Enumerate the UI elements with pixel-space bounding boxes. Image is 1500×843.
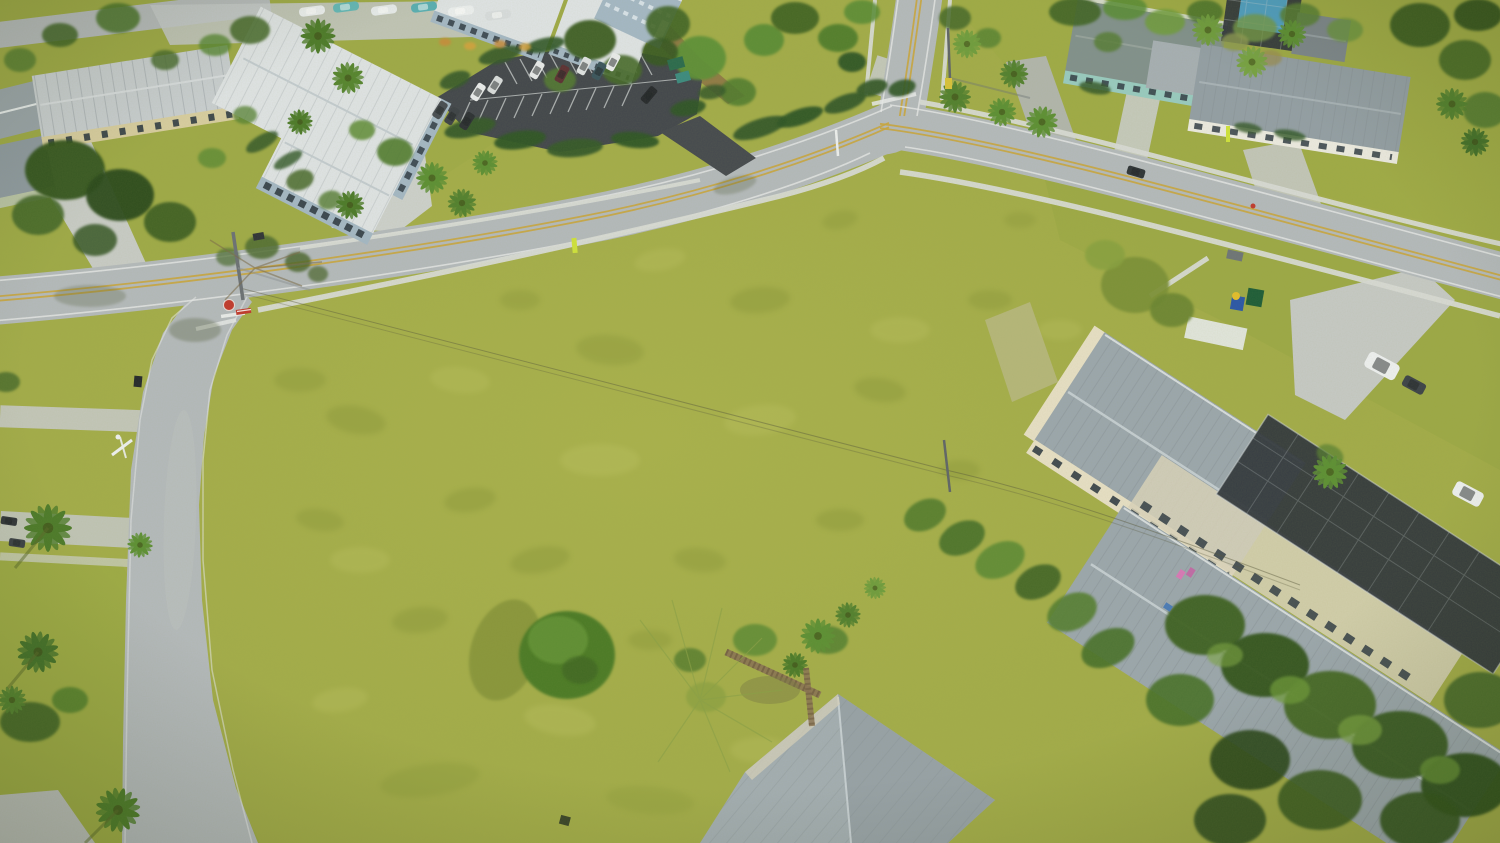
vignette [0,0,1500,843]
aerial-photo [0,0,1500,843]
aerial-photo-page [0,0,1500,843]
